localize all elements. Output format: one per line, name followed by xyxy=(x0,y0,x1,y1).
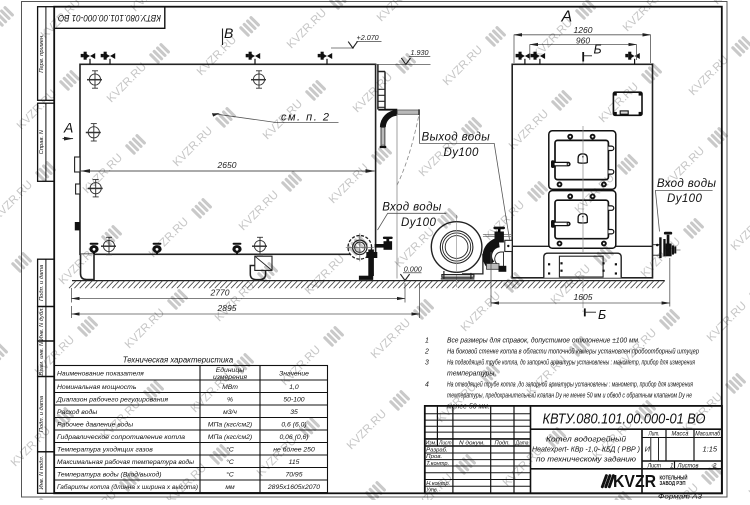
svg-text:1:15: 1:15 xyxy=(703,445,718,454)
svg-text:0.000: 0.000 xyxy=(404,265,422,274)
svg-text:1605: 1605 xyxy=(574,292,593,302)
svg-text:KVZR: KVZR xyxy=(613,471,656,491)
svg-text:Б: Б xyxy=(594,43,602,57)
svg-text:1260: 1260 xyxy=(574,25,593,35)
svg-text:70/95: 70/95 xyxy=(285,472,302,479)
svg-text:Перв. примен.: Перв. примен. xyxy=(39,34,45,73)
svg-text:Пров.: Пров. xyxy=(426,454,442,460)
svg-text:Heatexpert- КВр -1,0- КБД ( РВ: Heatexpert- КВр -1,0- КБД ( РВР ) xyxy=(532,445,640,454)
svg-text:МПа (кгс/см2): МПа (кгс/см2) xyxy=(208,434,252,441)
svg-text:Номинальная мощность: Номинальная мощность xyxy=(57,384,137,391)
svg-text:ЗАВОД РЭП: ЗАВОД РЭП xyxy=(660,481,686,487)
svg-text:Dy100: Dy100 xyxy=(667,193,702,205)
svg-text:°С: °С xyxy=(226,471,234,479)
svg-text:Разраб.: Разраб. xyxy=(426,447,448,453)
svg-text:мм: мм xyxy=(225,484,235,491)
svg-text:Листов: Листов xyxy=(677,462,700,469)
svg-text:Максимальная рабочая температу: Максимальная рабочая температура воды xyxy=(57,458,194,466)
svg-text:Гидравлическое сопротивление к: Гидравлическое сопротивление котла xyxy=(57,433,185,441)
svg-text:2770: 2770 xyxy=(210,288,230,298)
svg-text:Дата: Дата xyxy=(515,440,529,446)
svg-text:Инв. N подл.: Инв. N подл. xyxy=(39,456,45,490)
svg-text:2: 2 xyxy=(424,349,429,356)
svg-text:2650: 2650 xyxy=(217,160,237,170)
svg-text:1: 1 xyxy=(670,462,673,469)
svg-text:Подп.: Подп. xyxy=(495,440,511,446)
svg-text:м3/ч: м3/ч xyxy=(223,409,237,416)
svg-text:Б: Б xyxy=(598,308,606,322)
svg-text:Температура воды (Вход/выход): Температура воды (Вход/выход) xyxy=(57,471,162,479)
svg-text:Лит.: Лит. xyxy=(648,430,660,437)
svg-text:N докум.: N докум. xyxy=(459,440,485,446)
svg-text:Масштаб: Масштаб xyxy=(695,430,720,437)
svg-text:по техническому заданию: по техническому заданию xyxy=(536,455,636,464)
svg-text:Техническая характеристика: Техническая характеристика xyxy=(123,356,234,365)
svg-text:Dy100: Dy100 xyxy=(401,217,436,229)
svg-text:На отводящей трубе котла ,до з: На отводящей трубе котла ,до запорной ар… xyxy=(447,381,693,389)
svg-text:Лист: Лист xyxy=(438,440,451,446)
svg-text:%: % xyxy=(227,397,233,404)
svg-text:35: 35 xyxy=(290,409,298,416)
svg-text:1: 1 xyxy=(425,338,429,345)
svg-text:А: А xyxy=(63,120,73,136)
svg-text:4: 4 xyxy=(425,382,429,389)
svg-text:1.930: 1.930 xyxy=(411,48,429,57)
svg-text:Подп. и дата: Подп. и дата xyxy=(39,264,45,301)
svg-text:На подводящей трубе котла, д: На подводящей трубе котла, до запорной а… xyxy=(447,359,695,367)
svg-text:Все размеры для справок, допус: Все размеры для справок, допустимое откл… xyxy=(447,337,640,345)
svg-text:Температура уходящих газов: Температура уходящих газов xyxy=(57,446,153,454)
svg-text:Лист: Лист xyxy=(647,462,661,469)
svg-text:И: И xyxy=(645,445,651,454)
svg-text:Т.контр.: Т.контр. xyxy=(426,461,449,467)
svg-text:960: 960 xyxy=(576,36,590,46)
svg-text:115: 115 xyxy=(289,459,300,466)
svg-text:°С: °С xyxy=(226,458,234,466)
svg-text:1,0: 1,0 xyxy=(289,384,299,391)
svg-text:Инв. N дубл.: Инв. N дубл. xyxy=(39,307,45,341)
svg-text:Справ. N: Справ. N xyxy=(39,129,45,154)
svg-text:Изм.: Изм. xyxy=(426,440,437,446)
svg-text:50-100: 50-100 xyxy=(283,397,304,404)
svg-text:Наименование показателя: Наименование показателя xyxy=(57,371,144,378)
svg-text:+2.070: +2.070 xyxy=(357,33,379,42)
svg-text:температуры, предохранительный: температуры, предохранительный клапан Dу… xyxy=(447,392,692,400)
svg-text:Вход воды: Вход воды xyxy=(382,202,442,214)
svg-text:3: 3 xyxy=(425,360,429,367)
svg-text:2895х1605х2070: 2895х1605х2070 xyxy=(267,484,320,491)
svg-text:МПа (кгс/см2): МПа (кгс/см2) xyxy=(208,422,252,429)
